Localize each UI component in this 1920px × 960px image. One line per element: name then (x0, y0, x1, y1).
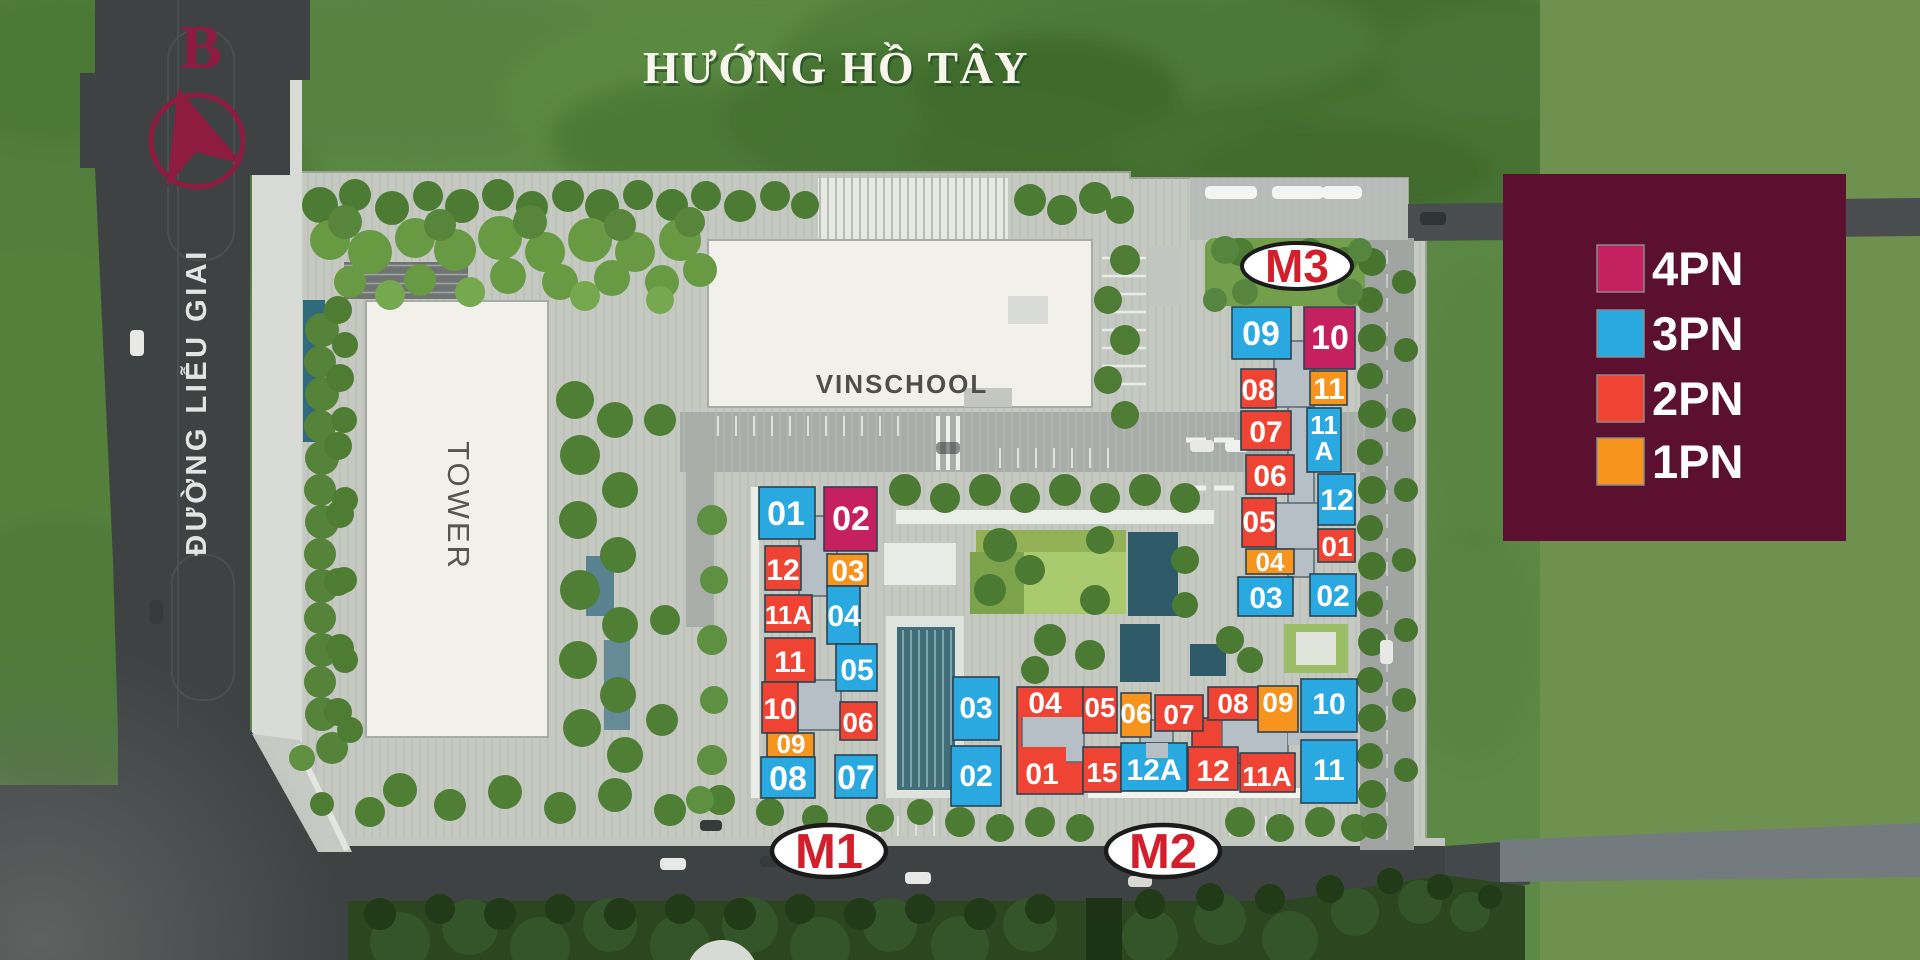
svg-text:06: 06 (1120, 698, 1151, 729)
svg-text:10: 10 (1312, 688, 1345, 721)
svg-text:11A: 11A (1242, 761, 1292, 792)
svg-text:03: 03 (959, 692, 992, 725)
svg-text:08: 08 (769, 760, 807, 798)
svg-text:11: 11 (774, 646, 806, 679)
svg-text:M1: M1 (795, 825, 863, 879)
svg-text:2PN: 2PN (1652, 372, 1743, 425)
svg-text:06: 06 (1253, 460, 1286, 493)
svg-text:03: 03 (1249, 582, 1282, 615)
svg-text:12: 12 (766, 554, 799, 587)
svg-text:11A: 11A (765, 600, 811, 630)
svg-text:01: 01 (767, 495, 805, 533)
svg-text:04: 04 (1256, 547, 1285, 577)
svg-text:09: 09 (1242, 315, 1280, 353)
svg-text:M3: M3 (1265, 240, 1329, 292)
svg-text:08: 08 (1241, 374, 1274, 407)
svg-text:10: 10 (763, 693, 796, 726)
svg-text:01: 01 (1321, 531, 1352, 562)
svg-text:07: 07 (1249, 416, 1282, 449)
svg-text:06: 06 (842, 707, 873, 738)
svg-text:08: 08 (1217, 688, 1248, 719)
svg-text:07: 07 (837, 759, 875, 797)
svg-text:ĐƯỜNG LIỄU GIAI: ĐƯỜNG LIỄU GIAI (179, 248, 213, 556)
svg-text:02: 02 (832, 500, 870, 538)
svg-text:4PN: 4PN (1652, 242, 1743, 295)
svg-text:09: 09 (777, 729, 806, 759)
svg-text:B: B (180, 14, 221, 82)
svg-text:M2: M2 (1129, 825, 1197, 879)
svg-text:HƯỚNG HỒ TÂY: HƯỚNG HỒ TÂY (643, 41, 1029, 93)
svg-text:07: 07 (1163, 699, 1194, 730)
svg-text:05: 05 (1084, 692, 1115, 723)
svg-text:A: A (1315, 436, 1334, 466)
svg-text:12A: 12A (1126, 754, 1181, 787)
svg-text:02: 02 (959, 760, 992, 793)
svg-text:05: 05 (840, 654, 873, 687)
svg-text:03: 03 (831, 555, 864, 588)
svg-text:1PN: 1PN (1652, 435, 1743, 488)
svg-text:04: 04 (827, 600, 861, 633)
svg-text:02: 02 (1316, 580, 1349, 613)
svg-text:11: 11 (1313, 754, 1345, 787)
svg-text:05: 05 (1242, 506, 1275, 539)
svg-text:VINSCHOOL: VINSCHOOL (816, 369, 989, 399)
svg-text:11: 11 (1313, 373, 1345, 406)
svg-text:12: 12 (1320, 484, 1353, 517)
svg-text:04: 04 (1028, 687, 1062, 720)
svg-text:3PN: 3PN (1652, 307, 1743, 360)
svg-text:10: 10 (1311, 319, 1349, 357)
svg-text:15: 15 (1086, 757, 1117, 788)
svg-text:12: 12 (1196, 755, 1229, 788)
svg-text:01: 01 (1025, 758, 1058, 791)
svg-text:TOWER: TOWER (441, 441, 476, 571)
svg-text:09: 09 (1262, 687, 1293, 718)
